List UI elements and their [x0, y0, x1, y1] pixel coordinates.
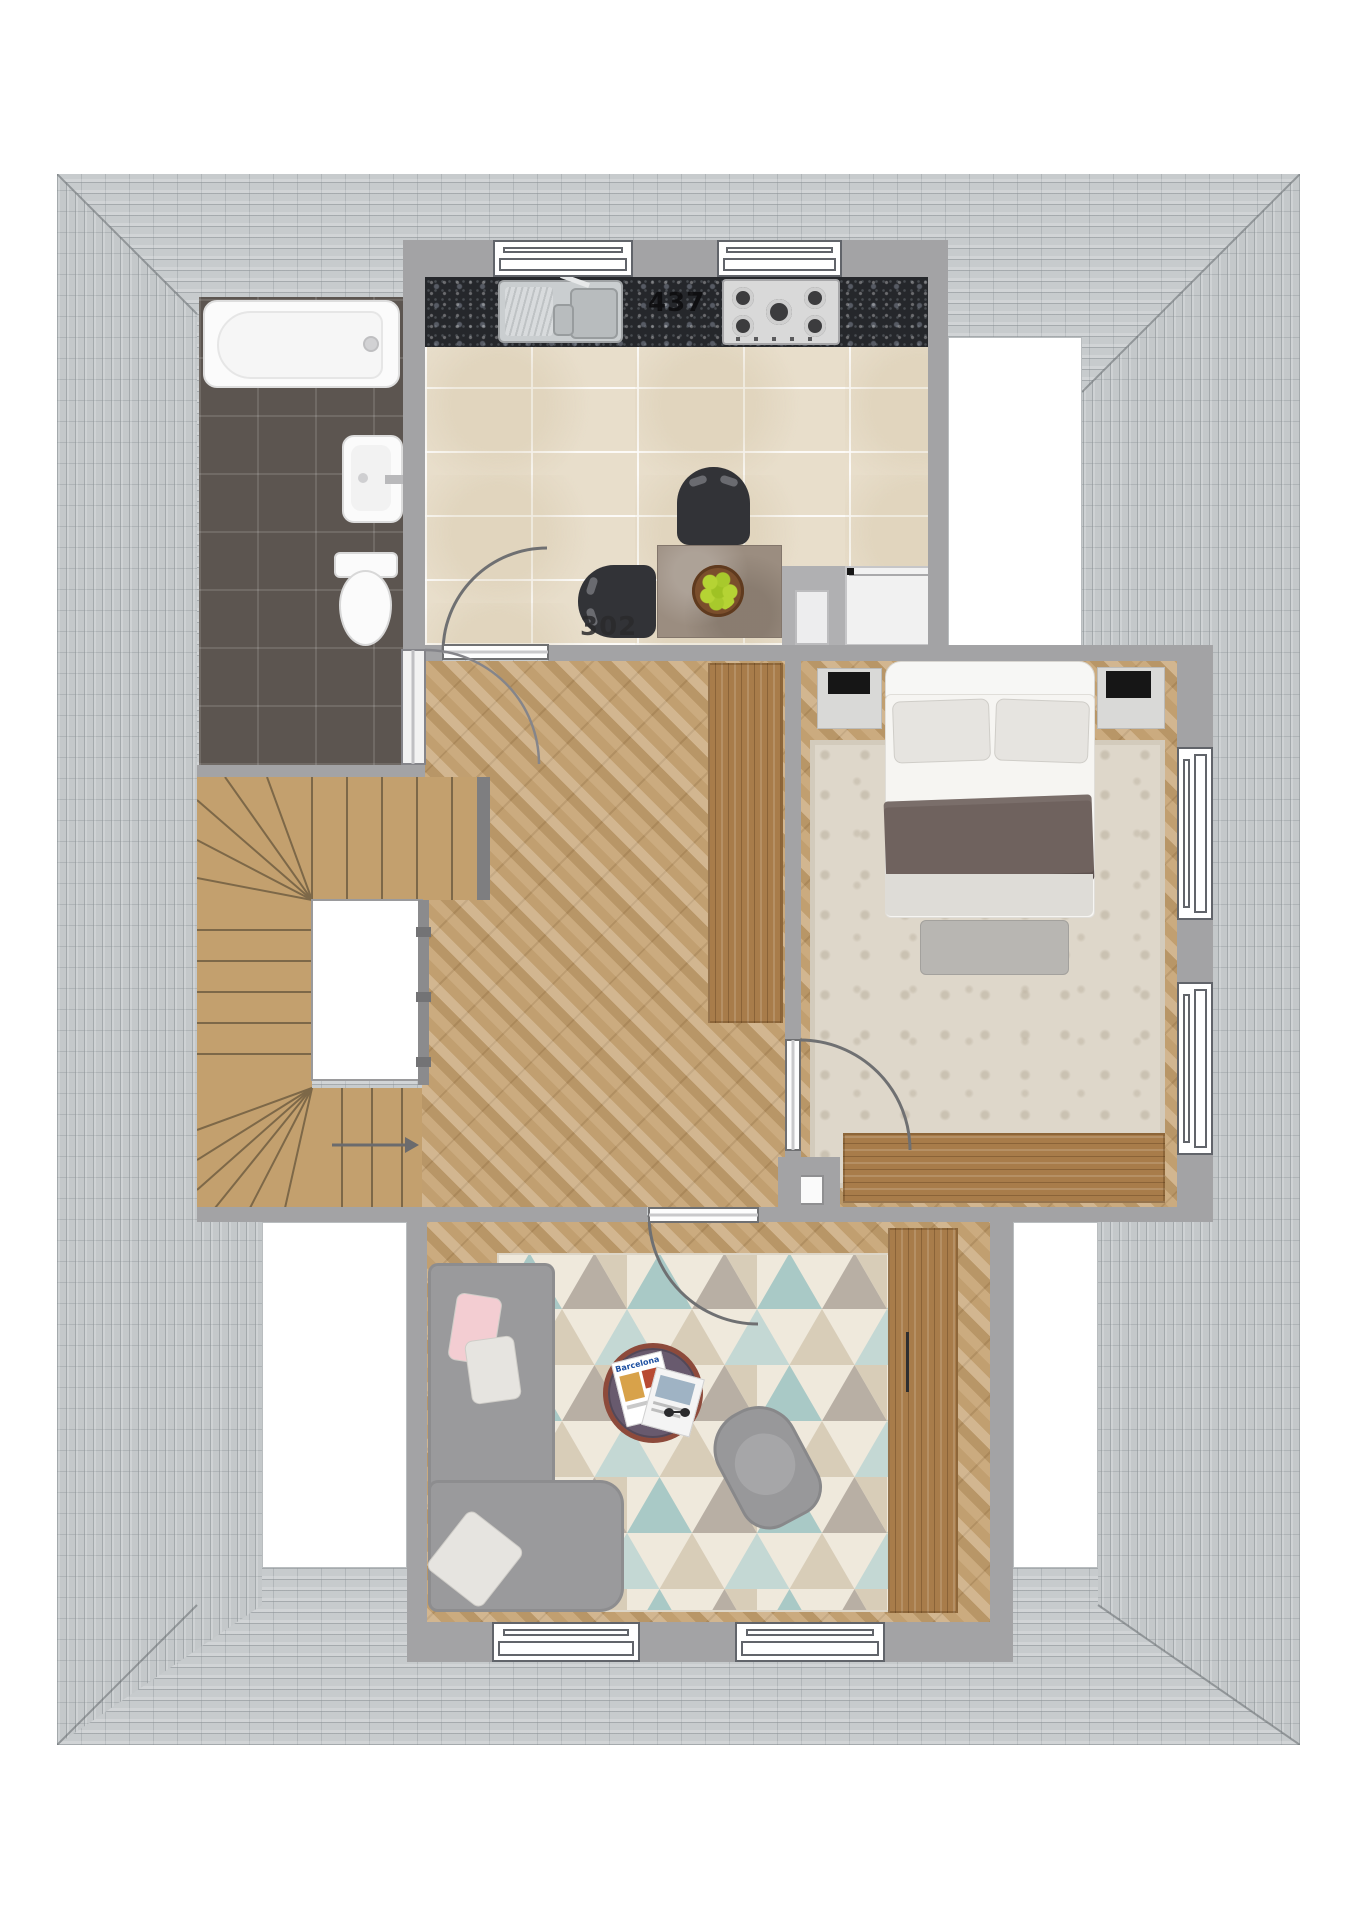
- hob-burner: [732, 315, 754, 337]
- nightstand-item: [828, 672, 870, 694]
- staircase: [197, 777, 497, 1208]
- living-room-sideboard: [888, 1228, 958, 1613]
- apples: [698, 571, 738, 611]
- washbasin-tap: [385, 475, 405, 484]
- nightstand-left: [817, 668, 882, 729]
- counter-code-label: 437: [648, 288, 705, 318]
- small-appliance: [795, 590, 829, 645]
- floor-plan-page: Barcelona: [0, 0, 1357, 1920]
- bed-pillow-left: [892, 698, 991, 763]
- dormer-bottom-left: [262, 1222, 407, 1568]
- wall-bedroom-west: [785, 1150, 801, 1207]
- gas-hob: [722, 279, 840, 345]
- kitchen-sink: [498, 280, 623, 343]
- fridge: [845, 566, 940, 646]
- stair-railing-top: [477, 777, 490, 900]
- bedroom-dresser: [843, 1133, 1165, 1203]
- hob-burner: [766, 299, 792, 325]
- bedroom-window-2: [1177, 982, 1213, 1155]
- wall-bedroom-west: [785, 661, 801, 1040]
- sideboard-handle: [906, 1332, 909, 1392]
- wall-kitchen-south: [403, 645, 443, 661]
- wall-center-south: [197, 1207, 647, 1222]
- sink-bowl-small: [553, 304, 574, 336]
- wall-bathroom-south: [197, 765, 425, 777]
- sink-drainer: [505, 287, 553, 336]
- fridge-hinge: [847, 568, 854, 575]
- wall-kitchen-north: [633, 240, 717, 277]
- bathtub: [203, 300, 400, 388]
- sink-bowl-main: [570, 288, 618, 339]
- wall-center-south: [758, 1207, 1213, 1222]
- magazine-photo: [619, 1372, 645, 1402]
- fruit-bowl: [692, 565, 744, 617]
- armchair-cushion: [724, 1423, 806, 1506]
- wall-bathroom-kitchen: [403, 240, 425, 777]
- hob-burner: [732, 287, 754, 309]
- bathtub-faucet: [363, 336, 379, 352]
- toilet-bowl: [339, 570, 392, 646]
- living-window-1: [492, 1622, 640, 1662]
- washbasin: [342, 435, 403, 523]
- hob-knobs: [736, 337, 826, 341]
- sunglasses-bridge: [673, 1411, 681, 1413]
- wall-bedroom-east: [1177, 648, 1213, 747]
- bed-duvet-fold: [885, 874, 1093, 916]
- dormer-top-right: [948, 337, 1082, 648]
- magazine-photo: [655, 1375, 695, 1406]
- stairwell-void: [312, 900, 422, 1080]
- bed-end-bench: [920, 920, 1069, 975]
- wall-kitchen-bedroom-south: [548, 645, 1213, 661]
- toilet: [328, 552, 403, 649]
- kitchen-chair-north: [677, 467, 750, 545]
- washbasin-drain: [358, 473, 368, 483]
- wall-bedroom-east: [1177, 1155, 1213, 1222]
- wall-living-west: [407, 1222, 427, 1622]
- bathtub-basin: [217, 311, 383, 379]
- wall-living-south: [885, 1622, 1013, 1662]
- wall-living-east: [990, 1222, 1013, 1622]
- wall-living-south: [407, 1622, 492, 1662]
- wall-living-south: [640, 1622, 735, 1662]
- floor-code-label: 302: [580, 612, 637, 642]
- hallway-wardrobe: [708, 663, 783, 1023]
- fridge-door-line: [849, 574, 936, 576]
- wall-kitchen-north: [425, 240, 493, 277]
- bedroom-window-1: [1177, 747, 1213, 920]
- dormer-bottom-right: [1013, 1222, 1098, 1568]
- wall-bedroom-east: [1177, 920, 1213, 982]
- kitchen-window-1: [493, 240, 633, 277]
- hob-burner: [804, 287, 826, 309]
- living-window-2: [735, 1622, 885, 1662]
- nightstand-item: [1106, 671, 1151, 698]
- hob-burner: [804, 315, 826, 337]
- sofa-cushion-white: [464, 1335, 522, 1405]
- wall-kitchen-east: [928, 240, 948, 661]
- kitchen-window-2: [717, 240, 842, 277]
- sunglasses-lens: [680, 1408, 690, 1417]
- sunglasses: [664, 1408, 690, 1418]
- bed-pillow-right: [994, 698, 1090, 763]
- nightstand-right: [1097, 667, 1165, 729]
